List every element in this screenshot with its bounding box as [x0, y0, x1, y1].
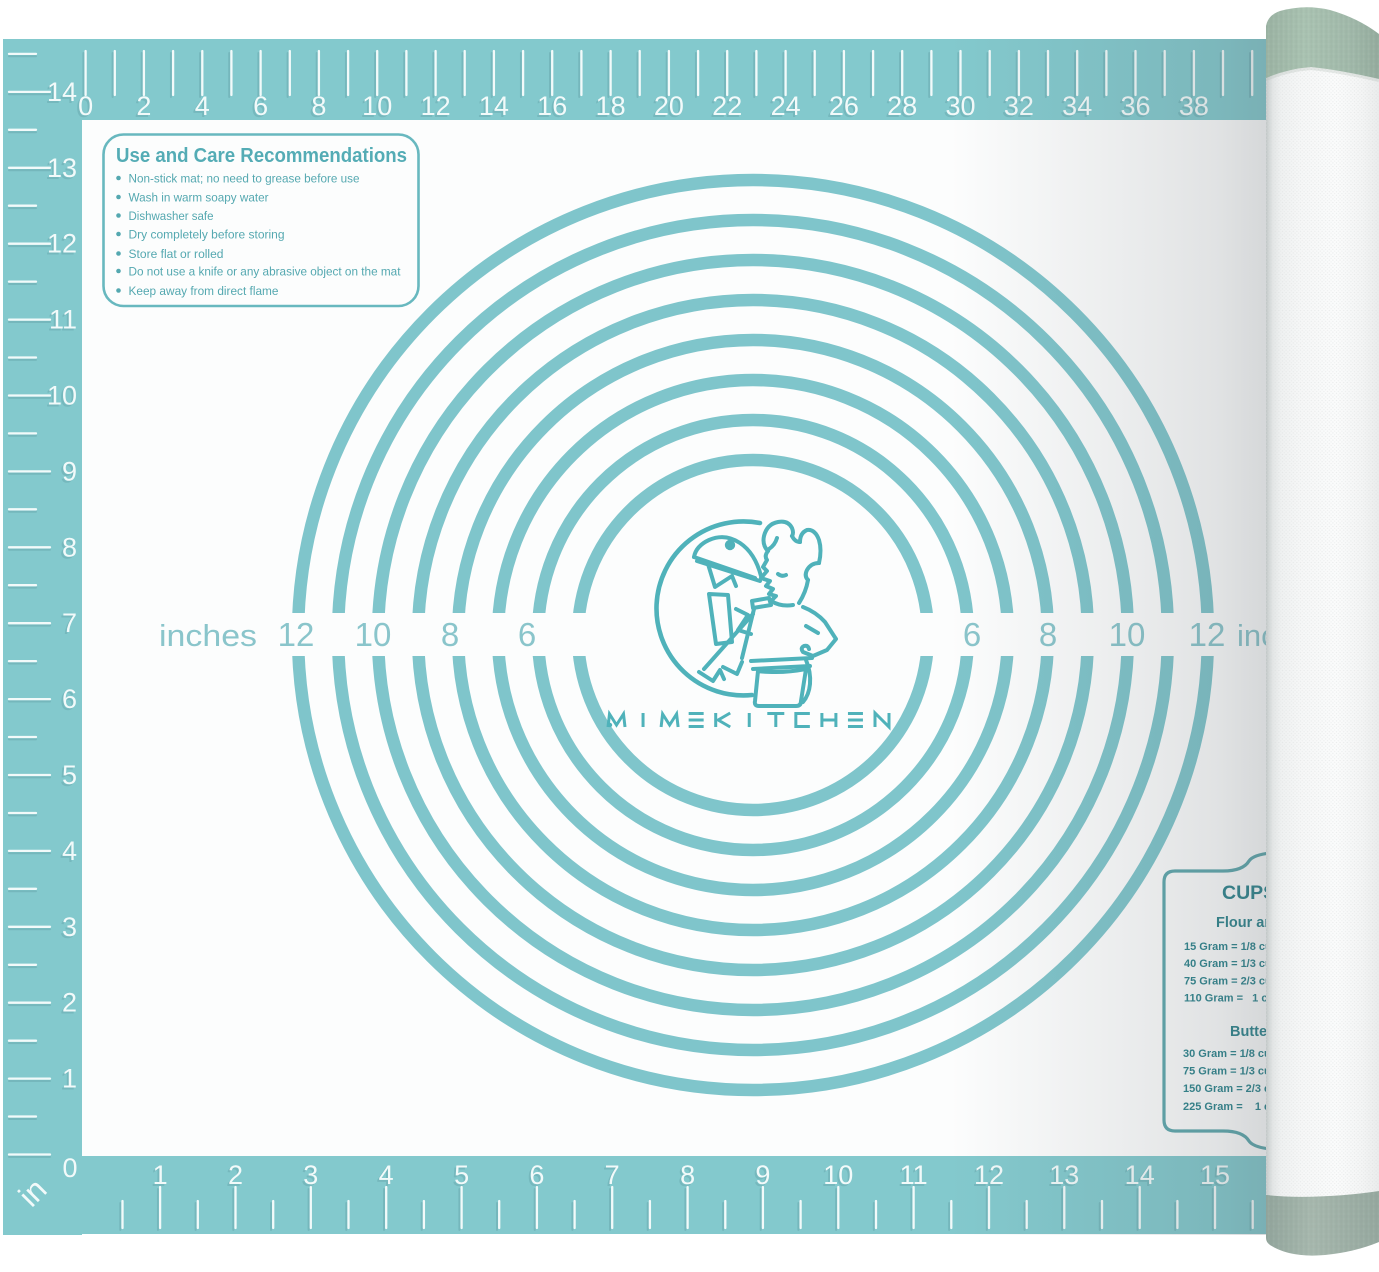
- svg-text:0: 0: [78, 91, 93, 121]
- svg-text:18: 18: [596, 91, 626, 121]
- svg-text:2: 2: [136, 91, 151, 121]
- svg-text:16: 16: [537, 91, 567, 121]
- svg-text:11: 11: [900, 1160, 928, 1190]
- svg-text:Dry completely before storing: Dry completely before storing: [129, 228, 285, 242]
- svg-text:1: 1: [62, 1064, 77, 1094]
- svg-text:8: 8: [311, 91, 326, 121]
- svg-text:3: 3: [303, 1160, 318, 1190]
- svg-text:12: 12: [47, 229, 77, 259]
- svg-text:9: 9: [62, 456, 77, 486]
- svg-text:28: 28: [887, 91, 917, 121]
- svg-text:8: 8: [62, 532, 77, 562]
- svg-text:2: 2: [62, 988, 77, 1018]
- svg-text:14: 14: [47, 77, 77, 107]
- svg-text:1: 1: [153, 1160, 168, 1190]
- svg-text:Wash in warm soapy water: Wash in warm soapy water: [129, 191, 269, 205]
- svg-text:24: 24: [771, 91, 801, 121]
- svg-text:9: 9: [755, 1160, 770, 1190]
- svg-text:4: 4: [379, 1160, 394, 1190]
- svg-text:4: 4: [195, 91, 210, 121]
- svg-text:26: 26: [829, 91, 859, 121]
- svg-text:7: 7: [62, 608, 77, 638]
- svg-text:6: 6: [518, 616, 536, 653]
- svg-text:Keep away from direct flame: Keep away from direct flame: [129, 284, 279, 298]
- svg-text:10: 10: [355, 616, 392, 653]
- svg-text:22: 22: [712, 91, 742, 121]
- svg-text:7: 7: [605, 1160, 620, 1190]
- svg-text:10: 10: [362, 91, 392, 121]
- svg-text:6: 6: [62, 684, 77, 714]
- svg-text:5: 5: [454, 1160, 469, 1190]
- svg-text:3: 3: [62, 912, 77, 942]
- svg-text:12: 12: [278, 616, 315, 653]
- svg-text:8: 8: [680, 1160, 695, 1190]
- svg-text:Use and Care Recommendations: Use and Care Recommendations: [116, 144, 407, 167]
- svg-text:13: 13: [47, 153, 77, 183]
- svg-text:inches: inches: [159, 618, 257, 653]
- svg-text:4: 4: [62, 836, 77, 866]
- svg-text:Dishwasher safe: Dishwasher safe: [129, 209, 214, 223]
- svg-text:14: 14: [479, 91, 509, 121]
- svg-text:10: 10: [823, 1160, 853, 1190]
- svg-text:8: 8: [441, 616, 459, 653]
- svg-text:6: 6: [253, 91, 268, 121]
- svg-text:Store flat or rolled: Store flat or rolled: [129, 247, 224, 261]
- svg-text:6: 6: [529, 1160, 544, 1190]
- svg-text:Do not use a knife or any abra: Do not use a knife or any abrasive objec…: [129, 265, 402, 279]
- svg-text:0: 0: [62, 1153, 77, 1183]
- svg-text:5: 5: [62, 760, 77, 790]
- svg-text:11: 11: [49, 305, 77, 335]
- svg-text:20: 20: [654, 91, 684, 121]
- svg-text:2: 2: [228, 1160, 243, 1190]
- svg-text:10: 10: [47, 381, 77, 411]
- svg-text:12: 12: [421, 91, 451, 121]
- svg-text:Non-stick mat; no need to grea: Non-stick mat; no need to grease before …: [129, 172, 360, 186]
